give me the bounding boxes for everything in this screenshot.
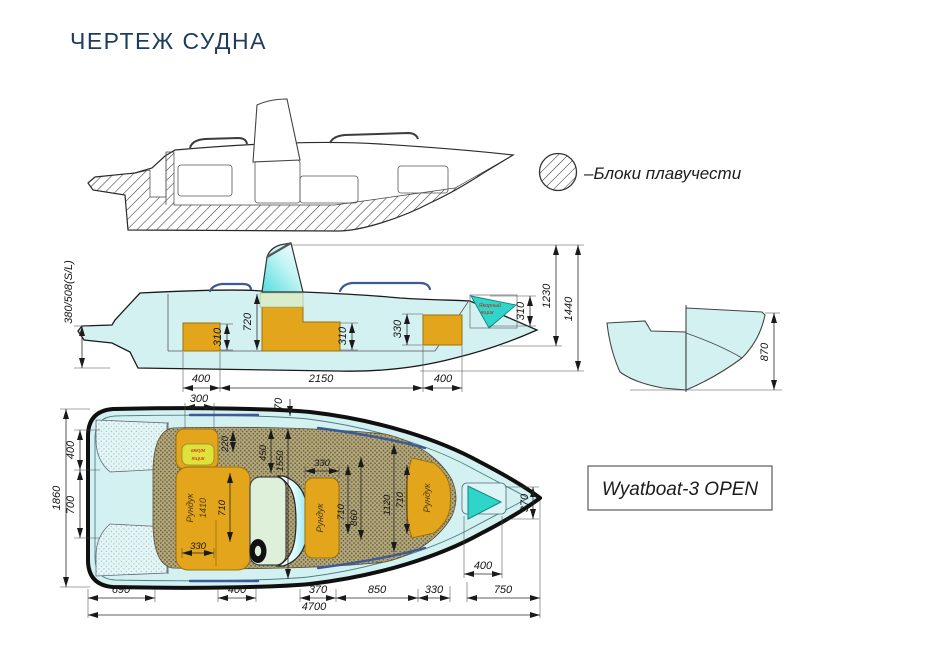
top-profile-view <box>88 99 513 231</box>
svg-text:400: 400 <box>434 373 453 385</box>
svg-text:450: 450 <box>258 444 269 461</box>
svg-text:710: 710 <box>336 503 347 520</box>
profile-aft-seat <box>178 165 232 196</box>
ship-drawing-canvas: –Блоки плавучести Якорный ящик 38 <box>0 0 950 658</box>
svg-text:690: 690 <box>112 584 131 596</box>
steering-wheel-hub <box>255 546 261 556</box>
svg-text:220: 220 <box>220 435 231 453</box>
transom-aft-half <box>607 321 686 390</box>
plan-view: аккум ящик Рундук 1410 Рундук Рундук <box>51 393 540 618</box>
svg-text:710: 710 <box>395 491 406 508</box>
svg-text:870: 870 <box>759 342 771 361</box>
profile-console <box>255 160 300 203</box>
side-windshield <box>262 243 303 292</box>
side-console-base <box>260 293 303 307</box>
svg-text:300: 300 <box>190 393 209 405</box>
svg-text:1550: 1550 <box>275 450 286 472</box>
model-label: Wyatboat-3 OPEN <box>602 479 759 500</box>
dim-freeboard: 380/508(S/L) <box>63 260 110 368</box>
battery-label-2: ящик <box>190 456 204 462</box>
svg-text:710: 710 <box>217 499 228 516</box>
svg-text:4700: 4700 <box>302 601 327 613</box>
svg-text:850: 850 <box>368 584 387 596</box>
svg-text:330: 330 <box>425 584 444 596</box>
side-fwd-rail <box>340 283 430 291</box>
svg-text:2150: 2150 <box>308 373 334 385</box>
aft-locker-label: Рундук <box>185 493 195 523</box>
buoyancy-legend: –Блоки плавучести <box>540 154 742 191</box>
bow-locker-label: Рундук <box>422 483 432 513</box>
profile-hatch-region <box>88 152 508 231</box>
svg-text:400: 400 <box>228 584 247 596</box>
transom-section-view: 870 <box>607 305 782 392</box>
svg-text:750: 750 <box>494 584 513 596</box>
aft-locker-size: 1410 <box>198 498 208 518</box>
profile-mid-seat <box>300 176 358 203</box>
svg-text:330: 330 <box>392 319 404 338</box>
svg-text:860: 860 <box>349 509 360 526</box>
profile-windshield <box>253 99 300 162</box>
svg-text:330: 330 <box>190 541 207 552</box>
svg-text:1120: 1120 <box>382 494 393 515</box>
battery-label-1: аккум <box>191 448 206 454</box>
svg-text:400: 400 <box>65 440 77 459</box>
svg-text:330: 330 <box>314 458 331 469</box>
svg-text:370: 370 <box>519 493 531 512</box>
model-label-box: Wyatboat-3 OPEN <box>588 466 772 510</box>
anchor-box-label-2: ящик <box>479 310 493 316</box>
svg-text:1230: 1230 <box>541 283 553 308</box>
drawing-sheet: ЧЕРТЕЖ СУДНА <box>0 0 950 658</box>
svg-text:700: 700 <box>65 495 77 514</box>
svg-text:400: 400 <box>474 560 493 572</box>
buoyancy-block-fwd <box>423 315 462 345</box>
buoyancy-legend-swatch <box>540 154 577 191</box>
anchor-box-label-1: Якорный <box>478 302 501 309</box>
side-elevation-view: Якорный ящик 380/508(S/L) 720 310 310 <box>63 243 584 392</box>
svg-text:720: 720 <box>242 312 254 331</box>
svg-text:370: 370 <box>309 584 328 596</box>
svg-text:1440: 1440 <box>563 296 575 321</box>
svg-text:310: 310 <box>515 301 527 320</box>
svg-text:310: 310 <box>337 326 349 345</box>
svg-text:1860: 1860 <box>51 485 63 510</box>
svg-text:400: 400 <box>192 373 211 385</box>
profile-fwd-rail <box>330 133 418 143</box>
svg-text:380/508(S/L): 380/508(S/L) <box>63 260 75 324</box>
mid-locker-label: Рундук <box>315 503 325 533</box>
svg-text:310: 310 <box>212 327 224 346</box>
profile-fwd-seat <box>398 166 448 193</box>
buoyancy-legend-label: –Блоки плавучести <box>583 164 742 183</box>
svg-text:70: 70 <box>273 397 285 410</box>
